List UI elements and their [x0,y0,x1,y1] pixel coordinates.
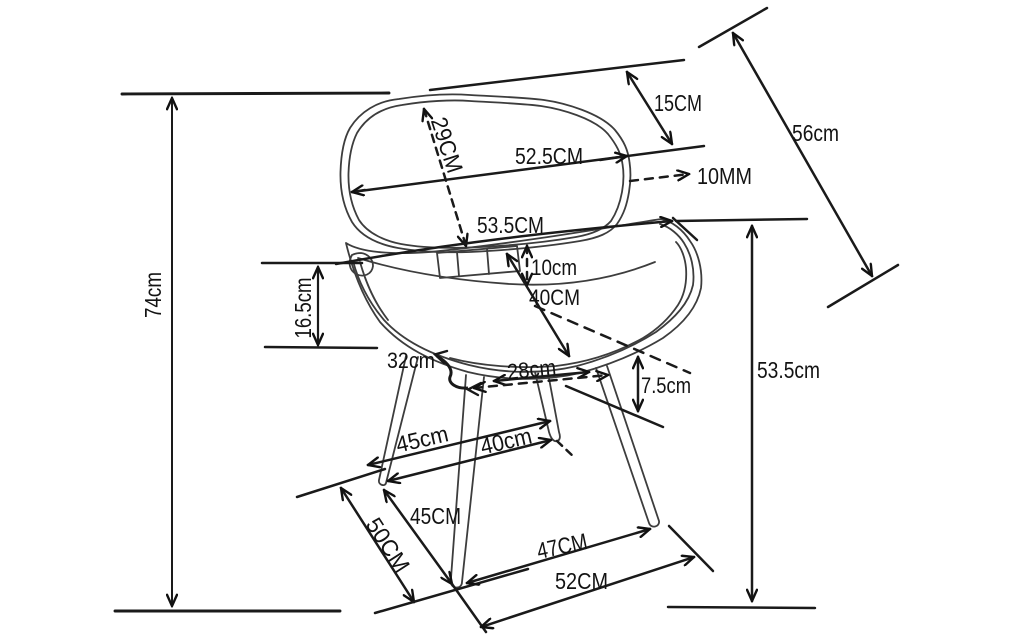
svg-text:40CM: 40CM [529,285,580,310]
svg-text:16.5cm: 16.5cm [290,278,316,339]
svg-text:56cm: 56cm [792,120,839,146]
svg-text:32cm: 32cm [387,348,435,373]
svg-text:10MM: 10MM [697,163,752,189]
svg-text:52.5CM: 52.5CM [515,143,583,169]
svg-text:53.5cm: 53.5cm [757,357,820,383]
svg-text:45CM: 45CM [410,503,461,529]
svg-text:47CM: 47CM [534,528,589,564]
svg-text:52CM: 52CM [555,568,608,594]
svg-text:15CM: 15CM [654,90,702,116]
svg-text:28cm: 28cm [506,354,557,384]
svg-text:7.5cm: 7.5cm [641,373,691,398]
svg-text:29CM: 29CM [426,114,468,176]
svg-text:53.5CM: 53.5CM [477,212,544,238]
svg-text:45cm: 45cm [393,420,450,457]
svg-text:74cm: 74cm [140,272,166,318]
svg-text:40cm: 40cm [478,422,535,459]
svg-text:10cm: 10cm [531,255,577,280]
